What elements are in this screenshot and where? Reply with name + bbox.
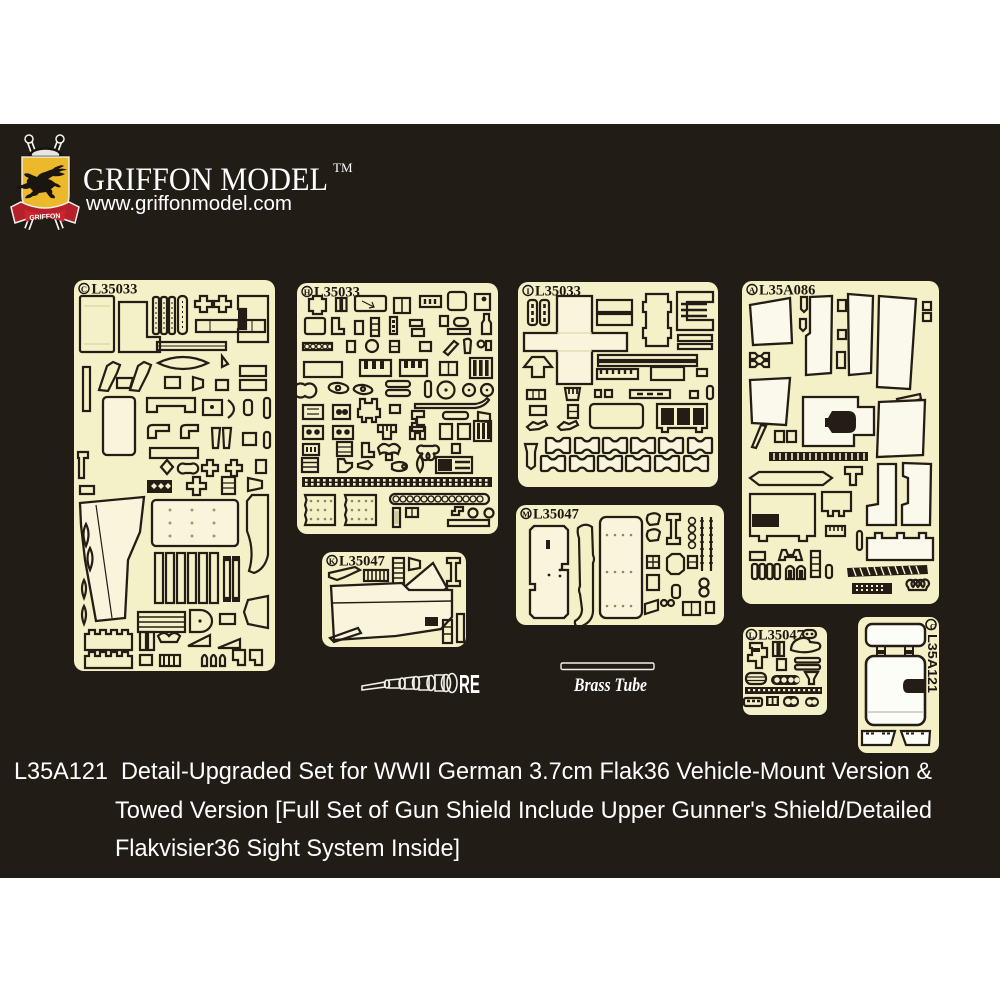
svg-text:A: A xyxy=(749,285,756,295)
svg-text:C: C xyxy=(81,284,87,294)
svg-text:www.griffonmodel.com: www.griffonmodel.com xyxy=(85,193,292,215)
svg-text:L35047: L35047 xyxy=(533,507,579,523)
svg-text:L: L xyxy=(749,630,755,640)
svg-text:C: C xyxy=(930,621,936,631)
svg-text:Brass Tube: Brass Tube xyxy=(573,675,647,696)
svg-text:M: M xyxy=(522,509,530,519)
svg-text:L35047: L35047 xyxy=(339,554,385,570)
svg-text:RE: RE xyxy=(459,669,480,699)
svg-text:TM: TM xyxy=(333,160,353,175)
svg-text:L35A121: L35A121 xyxy=(925,634,940,693)
svg-text:Flakvisier36 Sight System Insi: Flakvisier36 Sight System Inside] xyxy=(115,835,460,862)
svg-text:L35A121 Detail-Upgraded Set f: L35A121 Detail-Upgraded Set for WWII Ger… xyxy=(14,758,932,785)
svg-text:Towed Version [Full Set of Gun: Towed Version [Full Set of Gun Shield In… xyxy=(115,797,932,824)
svg-text:H: H xyxy=(304,287,311,297)
svg-text:K: K xyxy=(329,556,336,566)
